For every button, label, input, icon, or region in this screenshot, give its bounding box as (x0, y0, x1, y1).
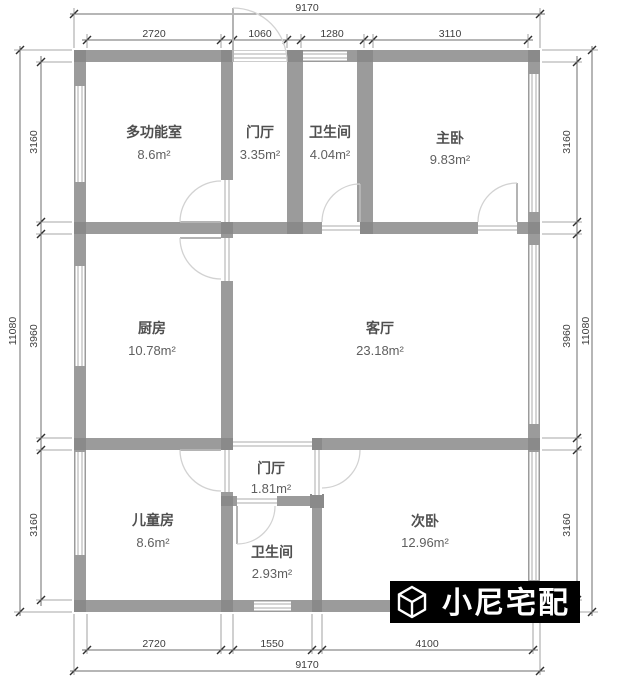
room-area: 10.78m² (128, 343, 176, 358)
dim-label: 1280 (320, 28, 344, 40)
door-swing (322, 184, 360, 222)
window (254, 602, 291, 611)
dim-label: 2720 (142, 638, 166, 650)
dim-label: 3160 (28, 513, 40, 537)
floor-plan-svg: 多功能室 8.6m² 门厅 3.35m² 卫生间 4.04m² 主卧 9.83m… (0, 0, 640, 689)
window (76, 452, 85, 555)
wall-junction (528, 438, 540, 450)
entry-door-opening (233, 51, 287, 62)
wall-junction (221, 50, 233, 62)
wall-junction (287, 50, 303, 62)
window (76, 266, 85, 366)
door-opening (221, 238, 233, 281)
wall-junction (221, 496, 233, 506)
wall-junction (74, 600, 86, 612)
wall-segment (287, 62, 303, 222)
dim-label: 3960 (561, 324, 573, 348)
window (530, 74, 539, 212)
room-name: 厨房 (138, 320, 166, 336)
dim-label: 3160 (561, 130, 573, 154)
door-opening (221, 180, 233, 222)
door-opening (237, 496, 277, 506)
room-name: 主卧 (436, 130, 464, 146)
dim-label: 1550 (260, 638, 284, 650)
wall-junction (221, 222, 233, 234)
room-area: 8.6m² (136, 535, 170, 550)
dim-label: 4100 (415, 638, 439, 650)
room-area: 12.96m² (401, 535, 449, 550)
wall-junction (357, 50, 373, 62)
room-name: 客厅 (365, 320, 394, 336)
door-swing (180, 238, 221, 279)
watermark: 小尼宅配 (390, 581, 580, 623)
dim-label: 9170 (295, 2, 319, 14)
wall-junction (74, 438, 86, 450)
window (76, 86, 85, 182)
wall-junction (310, 494, 324, 508)
door-swing (322, 450, 360, 488)
door-swing (237, 506, 275, 544)
room-area: 3.35m² (240, 147, 281, 162)
window (303, 52, 347, 61)
room-name: 卫生间 (309, 124, 351, 140)
wall-junction (312, 438, 322, 450)
door-swing (478, 183, 517, 222)
wall-junction (528, 222, 540, 234)
dim-label: 11080 (580, 317, 592, 346)
floor-plan-canvas: 多功能室 8.6m² 门厅 3.35m² 卫生间 4.04m² 主卧 9.83m… (0, 0, 640, 689)
dim-label: 3160 (28, 130, 40, 154)
door-opening (322, 222, 360, 234)
room-area: 23.18m² (356, 343, 404, 358)
door-opening (478, 222, 517, 234)
wall-junction (312, 600, 322, 612)
door-opening (312, 450, 322, 495)
door-opening (221, 450, 233, 492)
wall-segment (86, 222, 528, 234)
dimension-lines (14, 8, 598, 675)
room-name: 次卧 (411, 513, 439, 529)
room-area: 9.83m² (430, 152, 471, 167)
wall-junction (528, 50, 540, 62)
window (530, 245, 539, 424)
room-area: 8.6m² (137, 147, 171, 162)
room-name: 门厅 (257, 460, 285, 476)
dim-label: 11080 (7, 317, 19, 346)
dim-label: 9170 (295, 659, 319, 671)
wall-segment (221, 62, 233, 600)
door-swing (180, 450, 221, 491)
wall-junction (74, 50, 86, 62)
room-name: 儿童房 (131, 512, 174, 528)
dim-label: 3110 (439, 28, 462, 40)
dim-label: 1060 (248, 28, 272, 40)
window (530, 452, 539, 580)
room-name: 门厅 (246, 124, 274, 140)
watermark-brand: 小尼宅配 (442, 586, 570, 620)
wall-junction (74, 222, 86, 234)
wall-junction (287, 222, 303, 234)
dim-label: 3160 (561, 513, 573, 537)
dim-label: 3960 (28, 324, 40, 348)
wall-junction (221, 438, 233, 450)
room-area: 4.04m² (310, 147, 351, 162)
dim-label: 2720 (142, 28, 166, 40)
room-area: 2.93m² (252, 566, 293, 581)
room-area: 1.81m² (251, 481, 292, 496)
passage-opening (233, 438, 312, 450)
door-swing (180, 181, 221, 222)
wall-junction (221, 600, 233, 612)
room-name: 多功能室 (126, 124, 182, 140)
room-name: 卫生间 (251, 544, 293, 560)
